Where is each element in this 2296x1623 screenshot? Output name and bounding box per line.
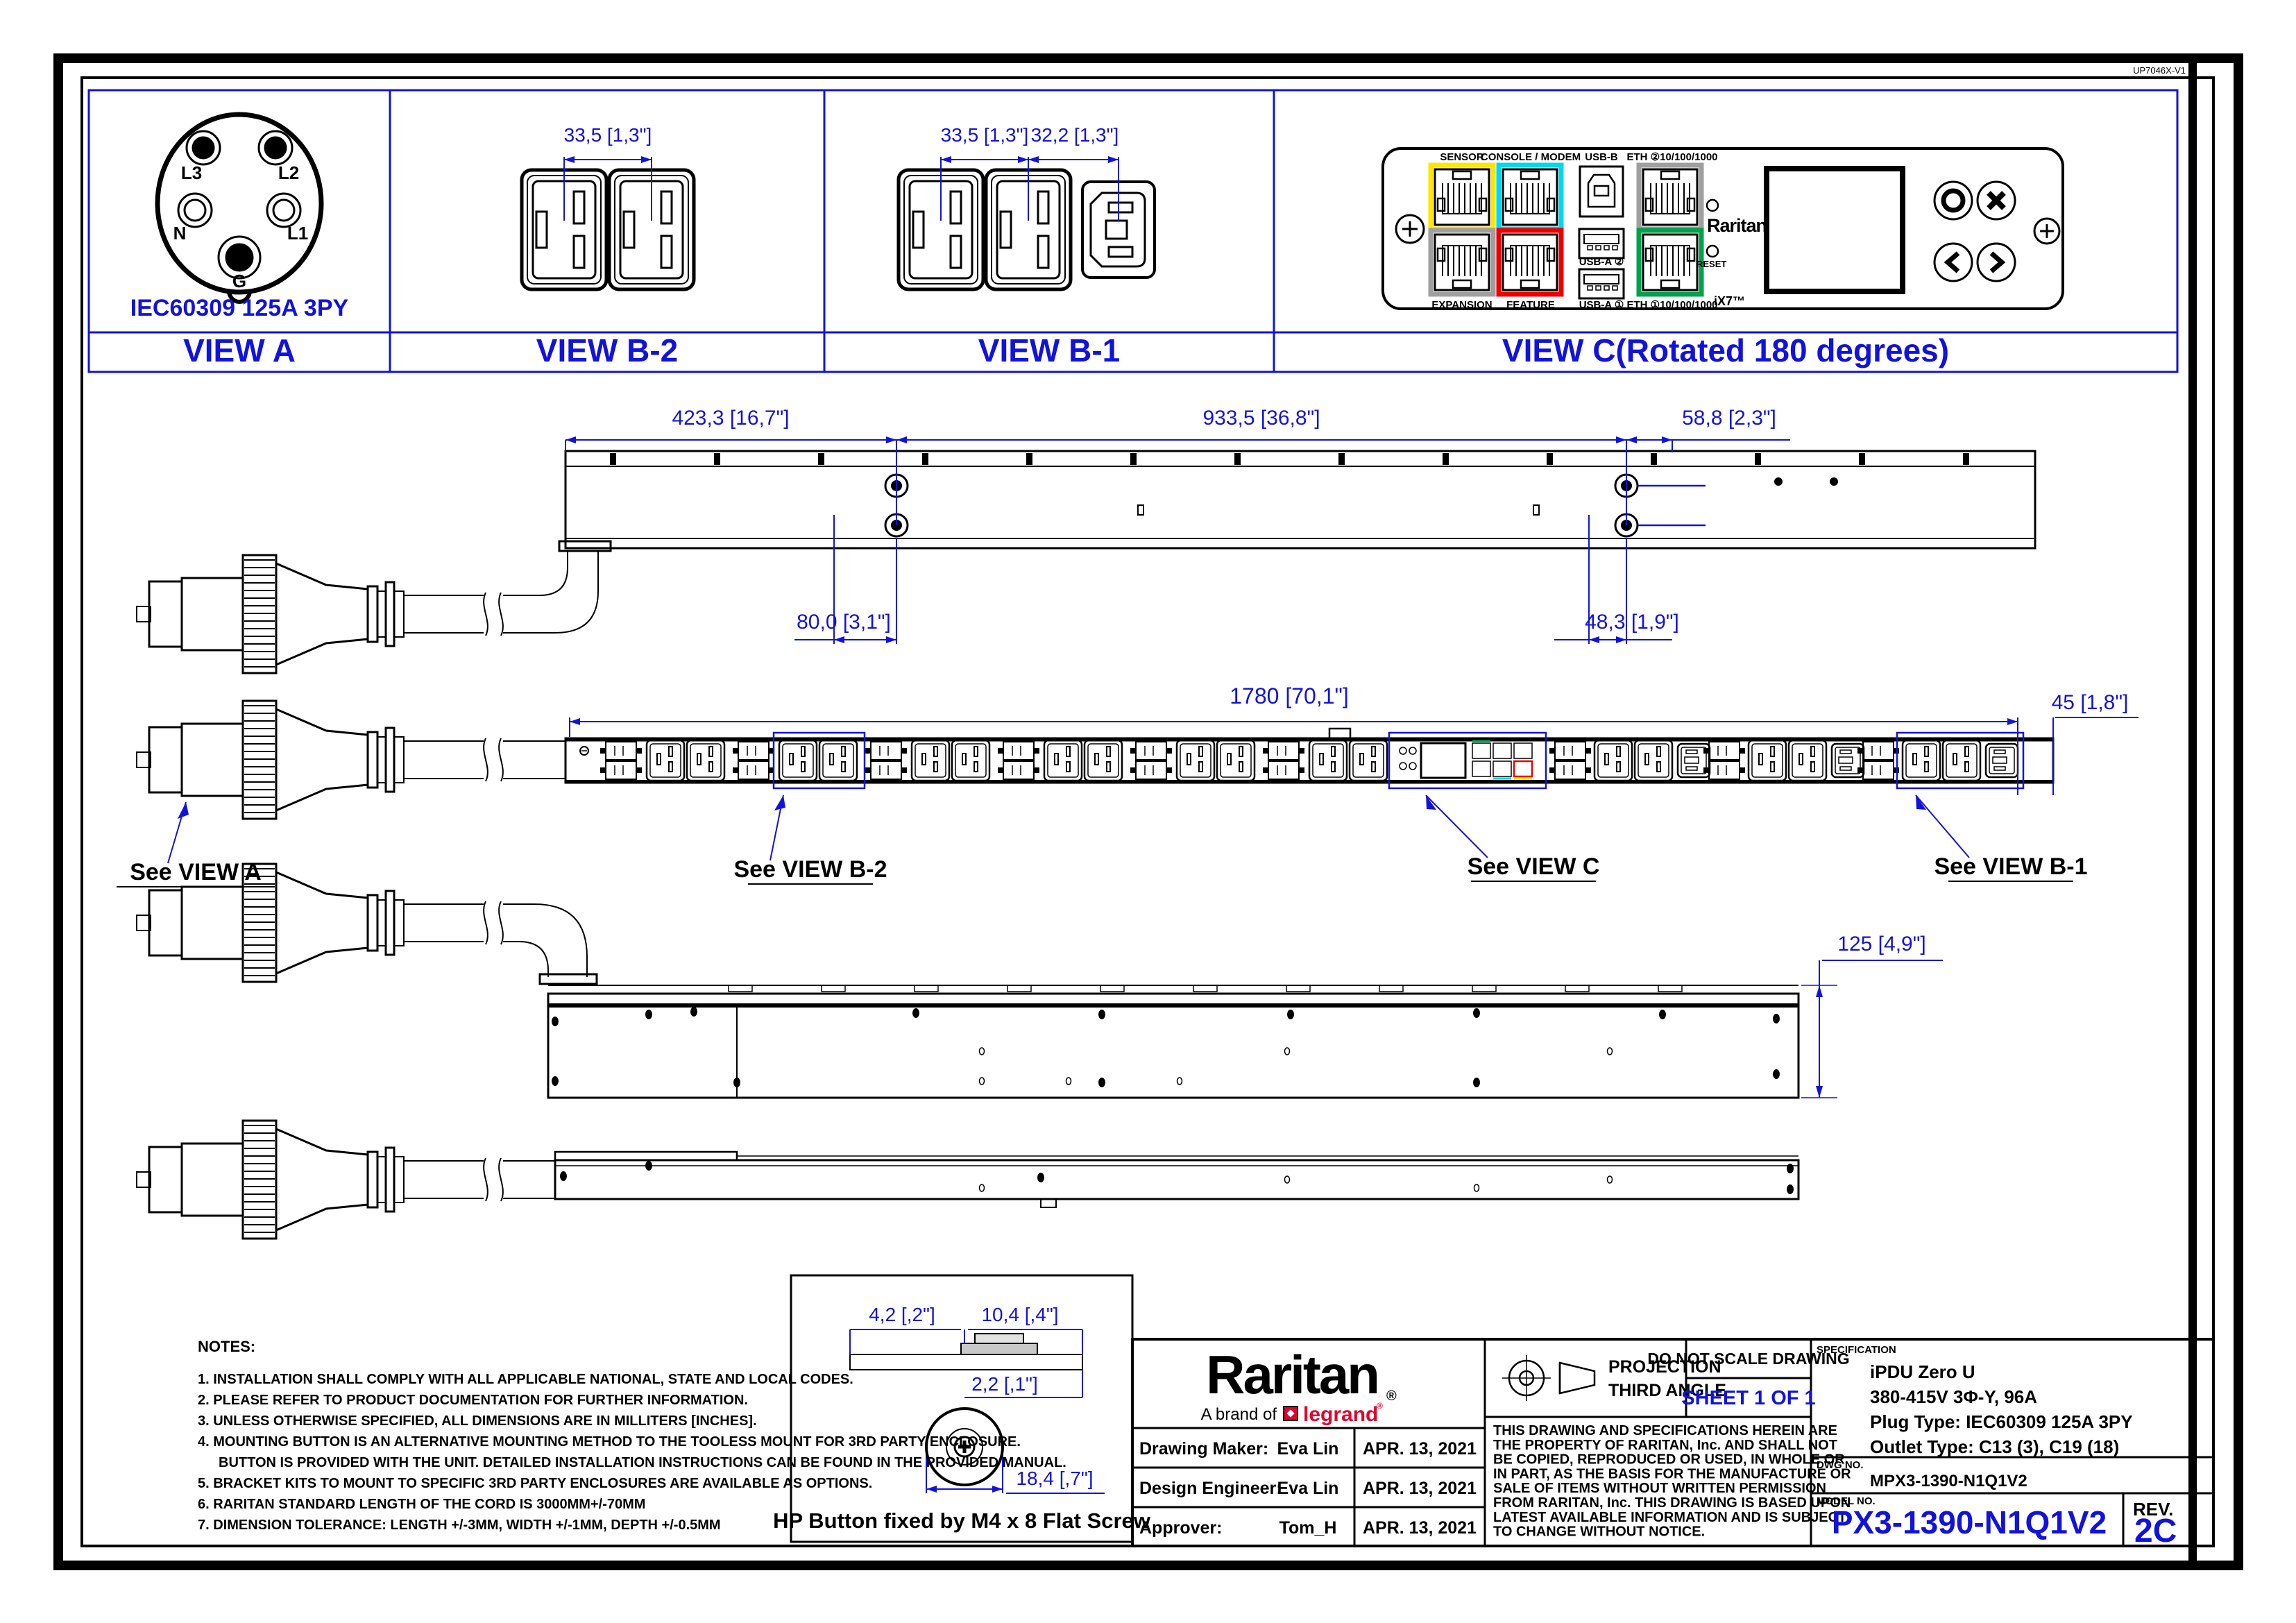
- approval-date-1: APR. 13, 2021: [1363, 1479, 1477, 1498]
- note-line-1: 2. PLEASE REFER TO PRODUCT DOCUMENTATION…: [198, 1393, 748, 1408]
- title-block: Raritan®A brand oflegrand®Drawing Maker:…: [1132, 1339, 2213, 1549]
- label-eth1: ETH ①10/100/1000: [1626, 299, 1717, 311]
- raritan-logo-text: Raritan: [1206, 1344, 1378, 1405]
- legrand-logo-text: legrand: [1303, 1403, 1378, 1426]
- rj45-inner: [1643, 169, 1697, 225]
- approval-name-1: Eva Lin: [1277, 1479, 1339, 1498]
- dim-423: 423,3 [16,7"]: [672, 407, 789, 430]
- outlet-c19-pair: [779, 740, 857, 781]
- rj45-port-icon: [1639, 165, 1701, 229]
- view-a-caption: IEC60309 125A 3PY: [130, 295, 349, 321]
- label-usb-a1: USB-A ①: [1579, 299, 1624, 311]
- note-line-6: 6. RARITAN STANDARD LENGTH OF THE CORD I…: [198, 1497, 645, 1512]
- note-line-3: 4. MOUNTING BUTTON IS AN ALTERNATIVE MOU…: [198, 1434, 1021, 1450]
- display-buttons: [1934, 182, 2015, 281]
- legal-line-4: SALE OF ITEMS WITHOUT WRITTEN PERMISSION: [1493, 1481, 1826, 1496]
- views-table: VIEW AVIEW B-2VIEW B-1VIEW C(Rotated 180…: [89, 90, 2177, 372]
- spec-line-3: Outlet Type: C13 (3), C19 (18): [1870, 1436, 2119, 1457]
- approval-date-2: APR. 13, 2021: [1363, 1518, 1477, 1538]
- outlet-pair-small: [1550, 742, 1590, 779]
- outlet-c19-pair: [1044, 740, 1122, 781]
- legal-line-5: FROM RARITAN, Inc. THIS DRAWING IS BASED…: [1493, 1495, 1851, 1511]
- pdu-side-view-middle: 125 [4,9"]: [137, 864, 1943, 1098]
- usb-a-port-icon: [1579, 229, 1624, 258]
- spec-line-1: 380-415V 3Φ-Y, 96A: [1870, 1386, 2037, 1407]
- view-c-label: VIEW C(Rotated 180 degrees): [1502, 332, 1949, 368]
- rj45-inner: [1503, 235, 1557, 290]
- pin-g: G: [232, 271, 246, 291]
- outlet-c19-c19-c13: [1595, 740, 1710, 781]
- see-label-0: See VIEW A: [130, 859, 262, 885]
- pdu-side-view-top: 423,3 [16,7"]933,5 [36,8"]58,8 [2,3"]80,…: [137, 407, 2035, 673]
- outlet-c19-c19-c13: [1749, 740, 1864, 781]
- legal-line-7: TO CHANGE WITHOUT NOTICE.: [1493, 1524, 1705, 1540]
- view-b2-label: VIEW B-2: [536, 332, 678, 368]
- engineering-drawing-page: { "doc": { "corner_code": "UP7046X-V1" }…: [0, 0, 2296, 1623]
- rj45-inner: [1435, 169, 1489, 225]
- outlet-pair-small: [1131, 742, 1171, 779]
- dim-4-2: 4,2 [,2"]: [869, 1304, 935, 1325]
- dim-933: 933,5 [36,8"]: [1202, 407, 1320, 430]
- dim-10-4: 10,4 [,4"]: [981, 1304, 1058, 1325]
- see-label-1: See VIEW B-2: [733, 856, 887, 883]
- rj45-inner: [1435, 235, 1489, 290]
- rj45-inner: [1503, 169, 1557, 225]
- dimensions-view1: 423,3 [16,7"]933,5 [36,8"]58,8 [2,3"]80,…: [566, 407, 1790, 644]
- legal-line-6: LATEST AVAILABLE INFORMATION AND IS SUBJ…: [1493, 1510, 1846, 1525]
- plug-assembly: [137, 701, 566, 819]
- see-label-3: See VIEW B-1: [1934, 853, 2087, 880]
- dwg-number: MPX3-1390-N1Q1V2: [1870, 1472, 2027, 1490]
- spec-line-2: Plug Type: IEC60309 125A 3PY: [1870, 1411, 2133, 1432]
- approval-name-0: Eva Lin: [1277, 1439, 1339, 1459]
- raritan-logo: Raritan®A brand oflegrand®: [1201, 1344, 1397, 1426]
- pdu-front-view: 1780 [70,1"]45 [1,8"]See VIEW ASee VIEW …: [117, 683, 2138, 887]
- screw-icon: [580, 747, 588, 755]
- plug-assembly: [137, 541, 611, 673]
- note-line-0: 1. INSTALLATION SHALL COMPLY WITH ALL AP…: [198, 1372, 853, 1387]
- outlet-pair-small: [866, 742, 906, 779]
- note-line-4: BUTTON IS PROVIDED WITH THE UNIT. DETAIL…: [219, 1455, 1066, 1470]
- label-usb-b: USB-B: [1585, 151, 1618, 163]
- spec-line-0: iPDU Zero U: [1870, 1361, 1975, 1382]
- b1-dim2: 32,2 [1,3"]: [1031, 124, 1119, 146]
- note-line-7: 7. DIMENSION TOLERANCE: LENGTH +/-3MM, W…: [198, 1518, 721, 1533]
- approval-role-1: Design Engineer:: [1139, 1479, 1282, 1498]
- label-expansion: EXPANSION: [1431, 299, 1492, 311]
- screw-icon: [1396, 215, 1424, 243]
- rj45-inner: [1643, 235, 1697, 290]
- label-feature: FEATURE: [1506, 299, 1555, 311]
- usb-b-port-icon: [1580, 167, 1623, 216]
- label-usb-a2: USB-A ②: [1579, 256, 1624, 268]
- pin-l3: L3: [181, 162, 202, 183]
- view-b2-outlets: 33,5 [1,3"]: [522, 124, 694, 289]
- outlet-pair-small: [1264, 742, 1304, 779]
- view-b1-label: VIEW B-1: [978, 332, 1120, 368]
- dwg-label: DWG NO.: [1817, 1459, 1864, 1471]
- outlet-c19-c19-c13: [1903, 740, 2018, 781]
- dim-80: 80,0 [3,1"]: [797, 611, 891, 634]
- legal-line-0: THIS DRAWING AND SPECIFICATIONS HEREIN A…: [1493, 1423, 1837, 1438]
- label-eth2: ETH ②10/100/1000: [1626, 151, 1717, 163]
- hp-caption: HP Button fixed by M4 x 8 Flat Screw: [773, 1509, 1151, 1533]
- label-reset: RESET: [1697, 259, 1726, 269]
- outlet-pair-small: [601, 742, 641, 779]
- note-line-5: 5. BRACKET KITS TO MOUNT TO SPECIFIC 3RD…: [198, 1476, 872, 1491]
- dim-2-2: 2,2 [,1"]: [971, 1373, 1038, 1395]
- view-a-label: VIEW A: [183, 332, 296, 368]
- hp-button-detail: 4,2 [,2"]10,4 [,4"]2,2 [,1"]18,4 [,7"]HP…: [773, 1275, 1151, 1542]
- outlet-c19-pair: [1177, 740, 1255, 781]
- raritan-reg: ®: [1386, 1388, 1397, 1404]
- label-console-modem: CONSOLE / MODEM: [1481, 151, 1581, 163]
- b1-dim1: 33,5 [1,3"]: [941, 124, 1029, 146]
- approval-role-2: Approver:: [1139, 1518, 1222, 1538]
- approval-name-2: Tom_H: [1279, 1518, 1337, 1538]
- legrand-reg: ®: [1377, 1401, 1383, 1411]
- dim-1780: 1780 [70,1"]: [1230, 683, 1349, 708]
- rj45-port-icon: [1431, 230, 1493, 294]
- outlet-pair-small: [733, 742, 774, 779]
- label-ix7: iX7™: [1714, 294, 1745, 308]
- dim-48: 48,3 [1,9"]: [1585, 611, 1679, 634]
- controller-section-small: [1400, 741, 1532, 779]
- rev-value: 2C: [2134, 1513, 2177, 1549]
- corner-code: UP7046X-V1: [2133, 65, 2186, 76]
- b2-dim: 33,5 [1,3"]: [564, 124, 652, 146]
- legal-line-1: THE PROPERTY OF RARITAN, Inc. AND SHALL …: [1493, 1438, 1837, 1453]
- sheet-number: SHEET 1 OF 1: [1681, 1387, 1815, 1409]
- pdu-rear-view: [137, 1121, 1798, 1239]
- screw-icon: [2034, 219, 2059, 244]
- brand-of: A brand of: [1201, 1405, 1277, 1424]
- dim-58: 58,8 [2,3"]: [1682, 407, 1776, 430]
- approval-role-0: Drawing Maker:: [1139, 1439, 1268, 1459]
- cad-sheet: UP7046X-V1VIEW AVIEW B-2VIEW B-1VIEW C(R…: [0, 0, 2296, 1623]
- rj45-port-icon: [1431, 165, 1493, 229]
- dim-45: 45 [1,8"]: [2052, 691, 2129, 714]
- note-line-2: 3. UNLESS OTHERWISE SPECIFIED, ALL DIMEN…: [198, 1413, 757, 1429]
- legal-line-3: IN PART, AS THE BASIS FOR THE MANUFACTUR…: [1493, 1466, 1851, 1481]
- outlet-pair-small: [998, 742, 1039, 779]
- rj45-port-icon: [1499, 165, 1561, 229]
- model-number: PX3-1390-N1Q1V2: [1832, 1504, 2107, 1540]
- outlet-c19-pair: [912, 740, 989, 781]
- projection-symbol: [1502, 1355, 1595, 1401]
- pin-l1: L1: [287, 223, 308, 244]
- usb-a-port-icon: [1579, 269, 1624, 298]
- notes-block: NOTES:1. INSTALLATION SHALL COMPLY WITH …: [198, 1338, 1066, 1533]
- notes-title: NOTES:: [198, 1338, 255, 1355]
- rj45-port-icon: [1639, 230, 1701, 294]
- raritan-wordmark: Raritan: [1707, 215, 1767, 236]
- label-sensor: SENSOR: [1440, 151, 1484, 163]
- see-labels: See VIEW ASee VIEW B-2See VIEW CSee VIEW…: [117, 795, 2088, 887]
- approval-date-0: APR. 13, 2021: [1363, 1439, 1477, 1459]
- dimensions-view3: 125 [4,9"]: [1801, 933, 1943, 1098]
- dim-18-4: 18,4 [,7"]: [1016, 1468, 1093, 1489]
- view-c-panel: SENSORCONSOLE / MODEMUSB-BETH ②10/100/10…: [1383, 148, 2063, 311]
- rj45-port-icon: [1499, 230, 1561, 294]
- plug-assembly: [137, 1121, 555, 1239]
- pin-n: N: [173, 223, 187, 244]
- dim-125: 125 [4,9"]: [1837, 933, 1925, 955]
- spec-label: SPECIFICATION: [1817, 1344, 1896, 1356]
- view-b1-outlets: 33,5 [1,3"]32,2 [1,3"]: [899, 124, 1155, 289]
- pin-l2: L2: [278, 162, 299, 183]
- view-a-connector: L3L2NL1GIEC60309 125A 3PY: [130, 114, 349, 321]
- outlet-c19-pair: [1309, 740, 1387, 781]
- outlet-c19-pair: [647, 740, 724, 781]
- legal-line-2: BE COPIED, REPRODUCED OR USED, IN WHOLE …: [1493, 1452, 1845, 1468]
